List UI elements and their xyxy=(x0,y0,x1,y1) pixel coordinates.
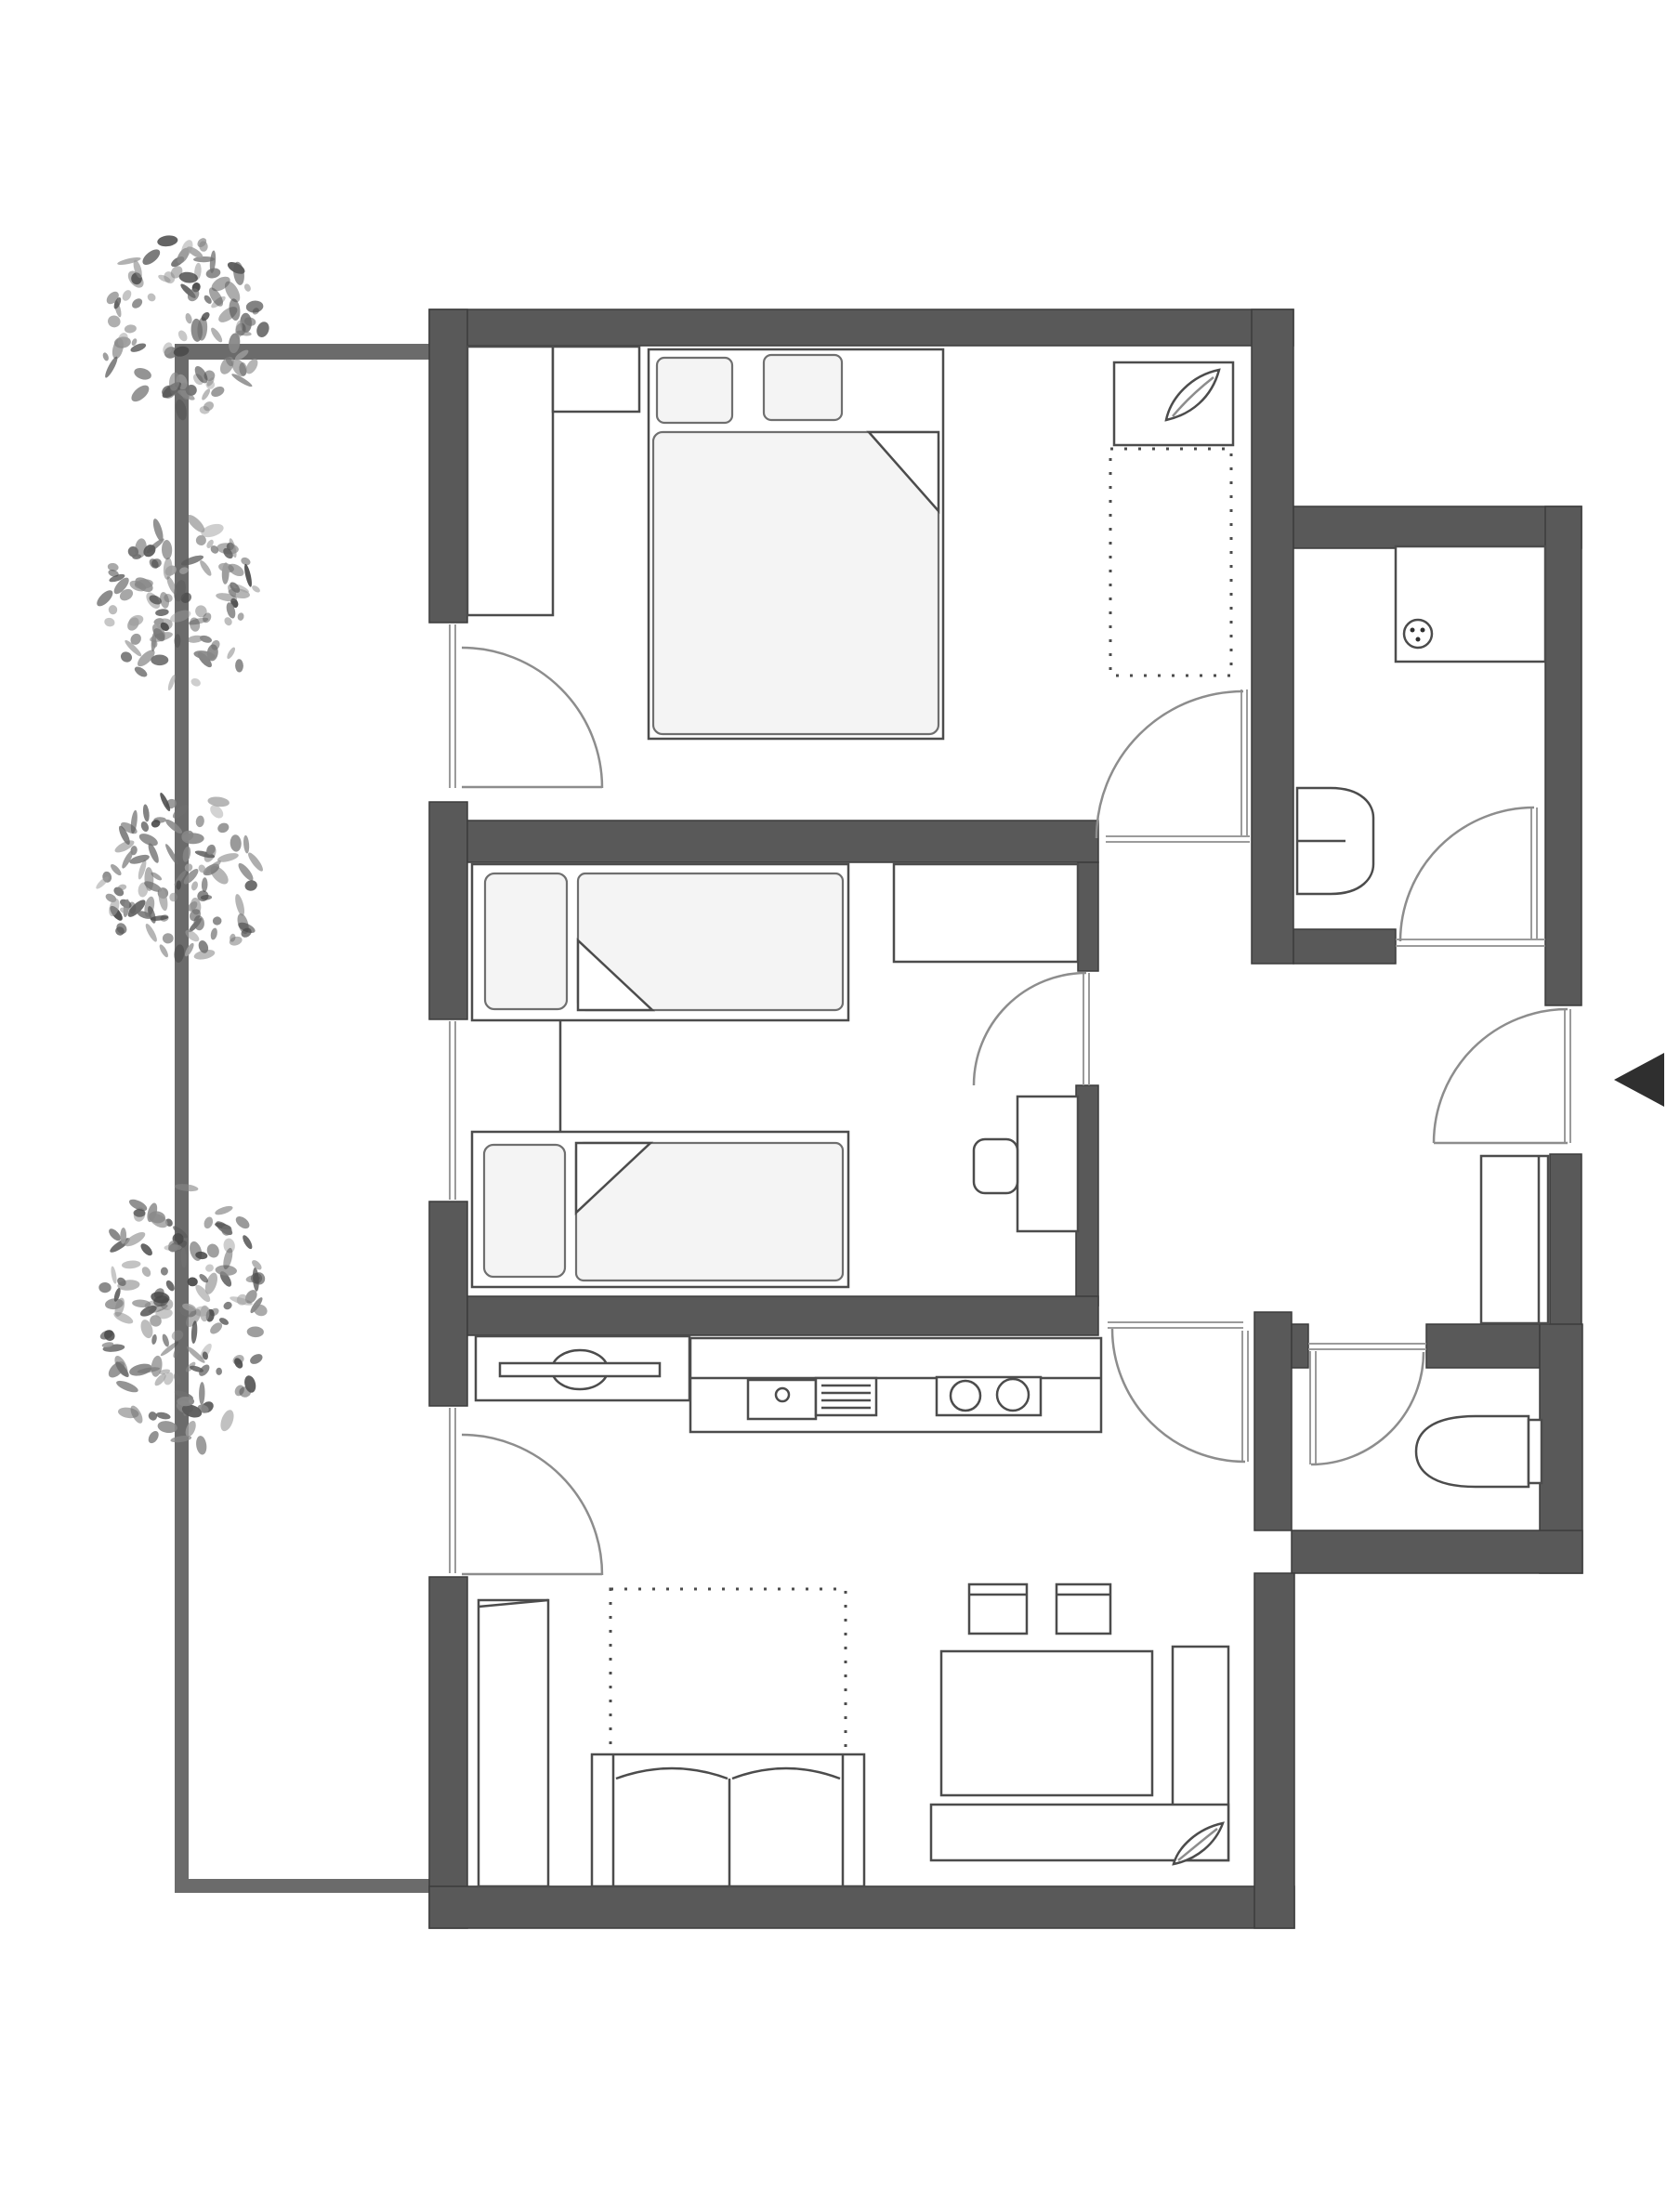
layer-hall xyxy=(1416,1053,1664,1487)
balcony-wall-left xyxy=(175,344,189,1893)
wall-kids-right-a xyxy=(1078,862,1098,971)
leaf xyxy=(251,584,261,594)
shower-drain-dot xyxy=(1421,628,1425,633)
bathroom-door-swing xyxy=(1400,808,1534,941)
layer-doors xyxy=(462,648,1570,1575)
kids-bed-1-pillow xyxy=(485,873,567,1009)
layer-balcony xyxy=(175,344,437,1893)
wall-left-a xyxy=(429,309,467,623)
leaf xyxy=(243,835,250,854)
wall-wc-top xyxy=(1426,1324,1540,1368)
leaf xyxy=(138,1241,154,1257)
balcony-wall-top xyxy=(175,344,429,360)
leaf xyxy=(209,326,224,344)
leaf xyxy=(201,387,212,401)
wall-living-right xyxy=(1254,1573,1294,1928)
leaf xyxy=(247,1326,265,1337)
leaf xyxy=(177,1397,194,1406)
leaf xyxy=(233,1214,252,1230)
leaf xyxy=(195,815,204,828)
wc-door-swing xyxy=(1311,1352,1424,1464)
leaf xyxy=(144,923,159,943)
kitchen-faucet xyxy=(776,1388,789,1401)
coffee-table xyxy=(941,1651,1152,1795)
stove-burner xyxy=(997,1379,1029,1411)
balcony-door-living-swing xyxy=(462,1435,602,1575)
kids-desk-chair xyxy=(974,1139,1017,1193)
leaf xyxy=(207,795,230,808)
wall-bathroom-bottom xyxy=(1293,929,1396,964)
wall-bottom xyxy=(429,1886,1294,1928)
bedroom-wardrobe xyxy=(467,347,553,615)
living-door-swing xyxy=(1112,1329,1245,1462)
shower-drain-dot xyxy=(1416,637,1421,642)
leaf xyxy=(236,861,256,883)
layer-living-furniture xyxy=(479,1584,1228,1886)
leaf xyxy=(184,312,193,324)
leaf xyxy=(95,874,111,890)
leaf xyxy=(130,296,144,310)
leaf xyxy=(139,821,150,833)
leaf xyxy=(205,267,222,280)
kids-door-swing xyxy=(974,973,1086,1085)
leaf xyxy=(177,329,190,343)
leaf xyxy=(102,1328,117,1343)
leaf xyxy=(199,1382,205,1405)
leaf xyxy=(233,893,246,917)
wc-toilet-bowl xyxy=(1416,1416,1529,1487)
side-table xyxy=(969,1584,1027,1634)
bedroom-door-swing xyxy=(1096,691,1243,838)
wall-top xyxy=(429,309,1293,346)
wall-bedroom-bathroom xyxy=(1252,309,1293,964)
kids-bed-2-pillow xyxy=(484,1145,565,1277)
leaf xyxy=(151,655,168,666)
leaf xyxy=(248,1352,264,1366)
kids-closet xyxy=(894,864,1078,962)
balcony-door-bedroom-swing xyxy=(462,648,602,788)
leaf xyxy=(212,915,223,926)
wall-bedroom-kids xyxy=(467,821,1098,862)
kitchen-drainer xyxy=(816,1378,876,1415)
leaf xyxy=(204,1263,215,1273)
layer-bathroom-fixtures xyxy=(1297,546,1545,894)
leaf xyxy=(103,617,115,628)
leaf xyxy=(146,292,157,303)
leaf xyxy=(110,1266,117,1284)
leaf xyxy=(243,879,258,892)
leaf xyxy=(158,943,170,958)
leaf xyxy=(255,320,271,339)
leaf xyxy=(142,804,151,822)
living-shelf xyxy=(479,1600,548,1886)
leaf xyxy=(216,1368,222,1375)
leaf xyxy=(140,246,163,268)
wall-bathroom-top xyxy=(1293,506,1582,548)
leaf xyxy=(241,1234,254,1251)
wall-kitchen xyxy=(467,1296,1098,1335)
leaf xyxy=(146,1429,161,1445)
leaf xyxy=(198,558,213,577)
leaf xyxy=(164,1279,177,1293)
leaf xyxy=(199,634,213,644)
leaf xyxy=(243,282,253,293)
leaf xyxy=(124,324,137,335)
leaf xyxy=(205,1242,221,1260)
leaf xyxy=(155,608,169,616)
leaf xyxy=(203,1215,215,1229)
leaf xyxy=(119,650,134,664)
leaf xyxy=(128,382,151,404)
wall-kids-right-b xyxy=(1076,1085,1098,1306)
layer-bedroom-furniture xyxy=(467,347,1233,739)
leaf xyxy=(210,927,218,940)
leaf xyxy=(190,881,199,892)
leaf xyxy=(214,1204,233,1216)
kids-desk xyxy=(1017,1096,1078,1231)
floor-plan xyxy=(0,0,1680,2193)
wall-wc-bottom xyxy=(1292,1530,1582,1573)
leaf xyxy=(121,288,134,302)
wall-right-a xyxy=(1545,506,1582,1005)
wall-left-b xyxy=(429,802,467,1019)
tree xyxy=(102,234,271,421)
leaf xyxy=(217,821,230,834)
leaf xyxy=(202,877,208,892)
wall-left-d xyxy=(429,1577,467,1928)
leaf xyxy=(237,612,245,622)
leaf xyxy=(161,1333,170,1348)
shower-drain xyxy=(1404,620,1432,648)
leaf xyxy=(108,605,118,615)
leaf xyxy=(157,234,178,247)
wall-left-c xyxy=(429,1202,467,1406)
layer-kitchen xyxy=(476,1336,1101,1432)
leaf xyxy=(107,562,119,571)
layer-kids-furniture xyxy=(472,864,1078,1287)
leaf xyxy=(102,352,111,362)
leaf xyxy=(182,833,204,844)
leaf xyxy=(115,1378,140,1394)
entry-door-swing xyxy=(1434,1009,1568,1143)
leaf xyxy=(235,659,243,672)
leaf xyxy=(190,676,202,688)
leaf xyxy=(122,1260,141,1269)
wc-toilet-tank xyxy=(1529,1420,1542,1483)
leaf xyxy=(162,540,173,560)
leaf xyxy=(195,1435,208,1455)
leaf xyxy=(243,563,253,587)
leaf xyxy=(222,1300,233,1310)
leaf xyxy=(161,1267,168,1275)
living-rug-dotted xyxy=(610,1589,846,1759)
leaf xyxy=(155,1412,171,1421)
leaf xyxy=(133,664,149,678)
leaf xyxy=(140,1265,152,1278)
leaf xyxy=(186,385,197,396)
double-bed-pillow xyxy=(657,358,732,423)
bedroom-wardrobe-side xyxy=(553,347,639,412)
double-bed-duvet xyxy=(653,432,938,734)
double-bed-pillow xyxy=(764,355,842,420)
side-table xyxy=(1057,1584,1110,1634)
wall-wc-nib xyxy=(1292,1324,1308,1368)
leaf xyxy=(218,1408,237,1433)
leaf xyxy=(230,834,242,852)
wall-wc-left xyxy=(1254,1312,1292,1530)
stove-burner xyxy=(951,1381,980,1411)
leaf xyxy=(133,366,153,382)
leaf xyxy=(98,1282,112,1293)
balcony-wall-bottom xyxy=(175,1879,437,1893)
shower-drain-dot xyxy=(1411,628,1415,633)
entrance-arrow xyxy=(1614,1053,1664,1107)
leaf xyxy=(163,933,174,943)
leaf xyxy=(226,646,237,660)
bedroom-reserved-area-dotted xyxy=(1110,449,1231,676)
radiator-bar xyxy=(500,1363,660,1376)
floor-plan-canvas xyxy=(0,0,1680,2193)
